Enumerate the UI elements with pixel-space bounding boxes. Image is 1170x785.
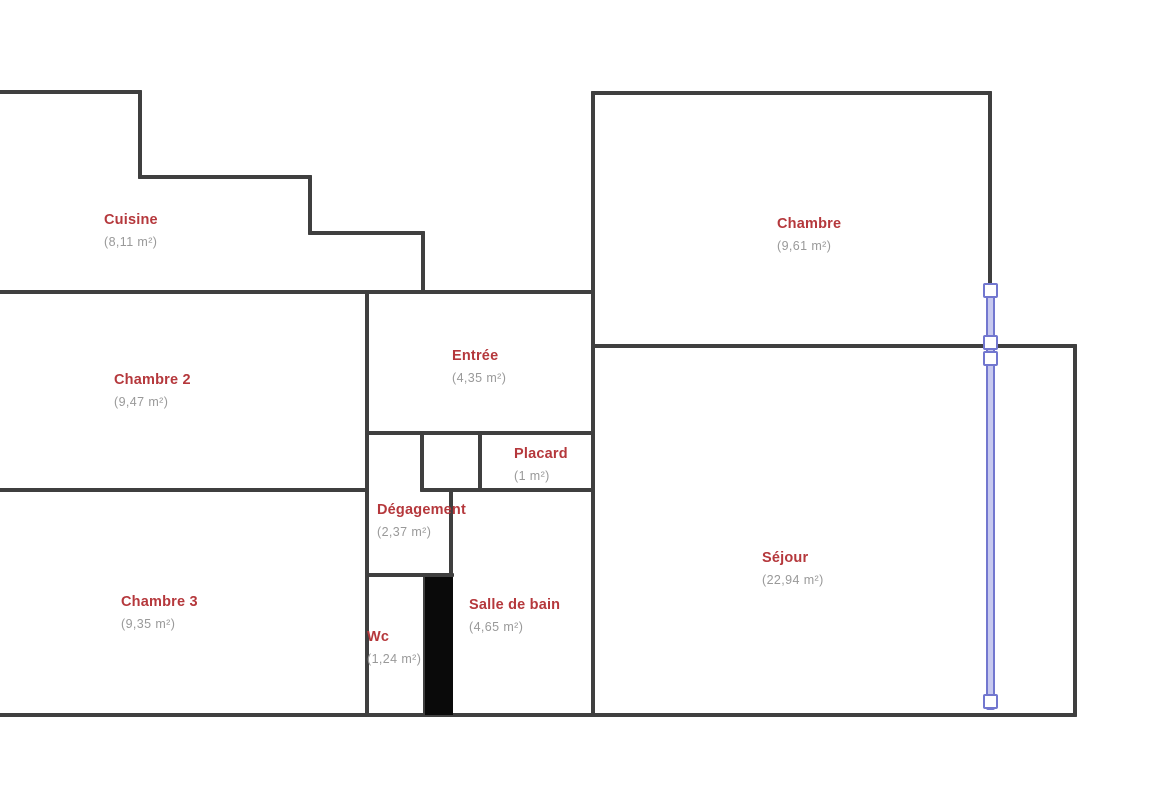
selection-drag-handle[interactable] xyxy=(983,335,998,350)
selection-drag-handle[interactable] xyxy=(983,694,998,709)
selection-overlay-layer xyxy=(0,0,1170,785)
floorplan-canvas: Cuisine (8,11 m²) Chambre (9,61 m²) Cham… xyxy=(0,0,1170,785)
selection-drag-handle[interactable] xyxy=(983,351,998,366)
selection-drag-handle[interactable] xyxy=(983,283,998,298)
